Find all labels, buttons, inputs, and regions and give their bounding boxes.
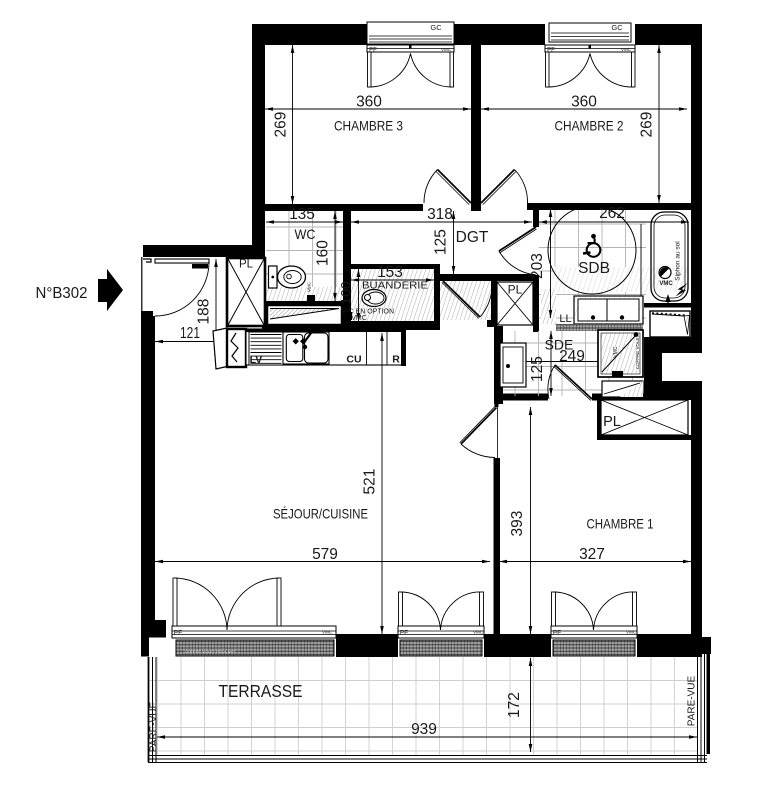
svg-text:PARE-VUE: PARE-VUE xyxy=(687,675,698,726)
svg-text:CHAMBRE 2: CHAMBRE 2 xyxy=(555,118,624,134)
svg-text:PL: PL xyxy=(239,259,254,271)
svg-text:125: 125 xyxy=(433,229,450,255)
svg-text:VMC: VMC xyxy=(307,281,312,292)
svg-text:WC: WC xyxy=(295,226,316,242)
svg-text:100: 100 xyxy=(338,281,354,305)
svg-text:521: 521 xyxy=(362,469,379,495)
svg-text:PF: PF xyxy=(553,630,561,637)
svg-text:VMC: VMC xyxy=(441,47,452,52)
svg-text:SDB: SDB xyxy=(578,260,610,277)
svg-text:VMC: VMC xyxy=(659,281,673,287)
svg-text:PL: PL xyxy=(603,414,621,430)
svg-text:393: 393 xyxy=(509,511,526,537)
svg-text:188: 188 xyxy=(196,299,213,325)
svg-text:DGT: DGT xyxy=(456,229,489,246)
svg-text:PF: PF xyxy=(400,630,408,637)
svg-text:VMC: VMC xyxy=(473,630,484,635)
svg-text:VMC: VMC xyxy=(626,630,637,635)
svg-text:939: 939 xyxy=(411,721,437,738)
svg-text:269: 269 xyxy=(273,112,290,138)
svg-text:160: 160 xyxy=(315,240,332,266)
svg-text:VMC: VMC xyxy=(322,630,333,635)
svg-text:579: 579 xyxy=(312,546,338,563)
svg-text:LL: LL xyxy=(559,313,571,325)
svg-text:PF: PF xyxy=(174,630,182,637)
svg-text:360: 360 xyxy=(571,94,597,111)
svg-text:R: R xyxy=(392,354,400,366)
svg-text:249: 249 xyxy=(559,348,585,365)
svg-text:CHAMBRE 3: CHAMBRE 3 xyxy=(334,118,403,134)
svg-text:GC: GC xyxy=(611,23,623,32)
svg-text:N°B302: N°B302 xyxy=(36,285,88,302)
svg-text:327: 327 xyxy=(579,546,605,563)
svg-text:CHAMBRE 1: CHAMBRE 1 xyxy=(587,516,654,532)
svg-text:172: 172 xyxy=(506,692,523,718)
svg-text:135: 135 xyxy=(289,206,315,223)
svg-text:269: 269 xyxy=(639,112,656,138)
svg-text:318: 318 xyxy=(427,206,453,223)
svg-text:153: 153 xyxy=(377,264,403,281)
svg-text:PL: PL xyxy=(508,283,523,297)
svg-text:COFFRE VOLET ROULANT: COFFRE VOLET ROULANT xyxy=(185,649,236,654)
svg-text:203: 203 xyxy=(529,253,546,279)
svg-text:LV: LV xyxy=(250,354,263,366)
svg-text:GC: GC xyxy=(430,23,442,32)
svg-text:CU: CU xyxy=(346,354,361,366)
svg-text:PARE-VUE: PARE-VUE xyxy=(149,701,160,752)
svg-text:SÉJOUR/CUISINE: SÉJOUR/CUISINE xyxy=(273,506,368,522)
svg-text:121: 121 xyxy=(180,325,200,342)
svg-text:VMC: VMC xyxy=(351,315,367,322)
svg-text:Siphon au sol: Siphon au sol xyxy=(675,241,682,281)
svg-text:125: 125 xyxy=(529,356,546,382)
svg-text:VMC: VMC xyxy=(613,346,619,358)
svg-text:VMC: VMC xyxy=(621,47,632,52)
svg-text:360: 360 xyxy=(356,94,382,111)
svg-text:COFFRE VOLET: COFFRE VOLET xyxy=(635,335,640,370)
svg-text:TERRASSE: TERRASSE xyxy=(219,681,303,701)
